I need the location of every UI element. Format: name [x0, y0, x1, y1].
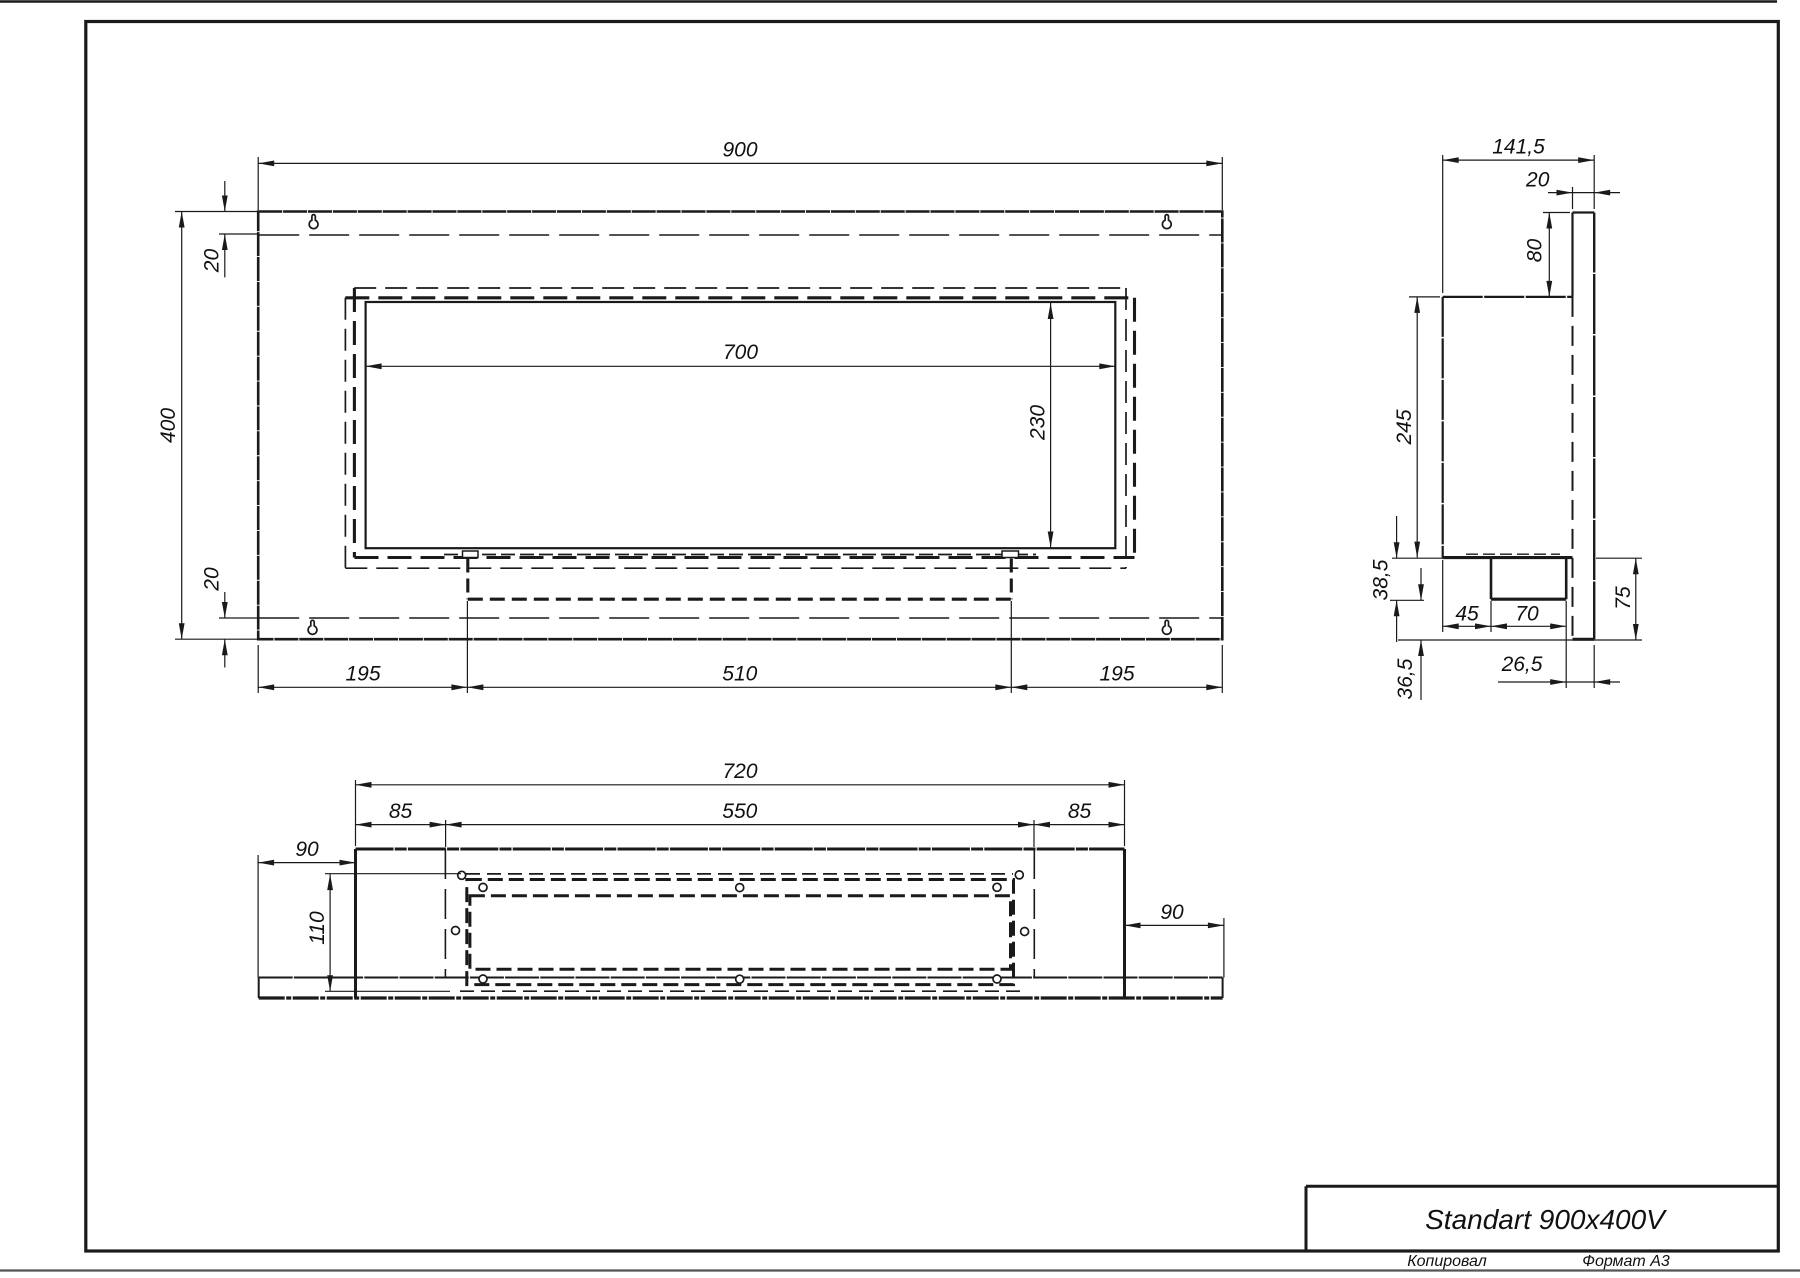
svg-text:110: 110 — [306, 911, 329, 945]
svg-text:90: 90 — [1160, 901, 1184, 924]
svg-text:38,5: 38,5 — [1370, 559, 1393, 600]
svg-text:245: 245 — [1393, 409, 1416, 445]
svg-text:26,5: 26,5 — [1501, 653, 1543, 676]
svg-text:510: 510 — [722, 663, 757, 686]
svg-text:20: 20 — [201, 567, 224, 592]
svg-text:700: 700 — [723, 341, 758, 364]
svg-text:Копировал: Копировал — [1407, 1253, 1487, 1270]
svg-text:550: 550 — [722, 800, 757, 823]
svg-text:195: 195 — [1099, 663, 1134, 686]
svg-text:400: 400 — [157, 408, 180, 443]
svg-text:75: 75 — [1612, 586, 1635, 610]
svg-text:70: 70 — [1515, 603, 1539, 626]
svg-text:20: 20 — [1525, 169, 1550, 192]
svg-text:230: 230 — [1027, 405, 1050, 441]
svg-text:Формат A3: Формат A3 — [1582, 1253, 1670, 1270]
svg-text:90: 90 — [295, 838, 319, 861]
svg-text:Standart 900x400V: Standart 900x400V — [1425, 1204, 1667, 1235]
svg-text:20: 20 — [201, 249, 224, 274]
svg-text:45: 45 — [1455, 603, 1479, 626]
svg-text:141,5: 141,5 — [1492, 136, 1545, 159]
svg-text:900: 900 — [722, 139, 757, 162]
svg-text:85: 85 — [389, 800, 413, 823]
svg-text:195: 195 — [345, 663, 380, 686]
svg-text:720: 720 — [722, 760, 757, 783]
svg-text:80: 80 — [1524, 239, 1547, 263]
svg-text:36,5: 36,5 — [1394, 658, 1417, 699]
svg-text:85: 85 — [1068, 800, 1092, 823]
